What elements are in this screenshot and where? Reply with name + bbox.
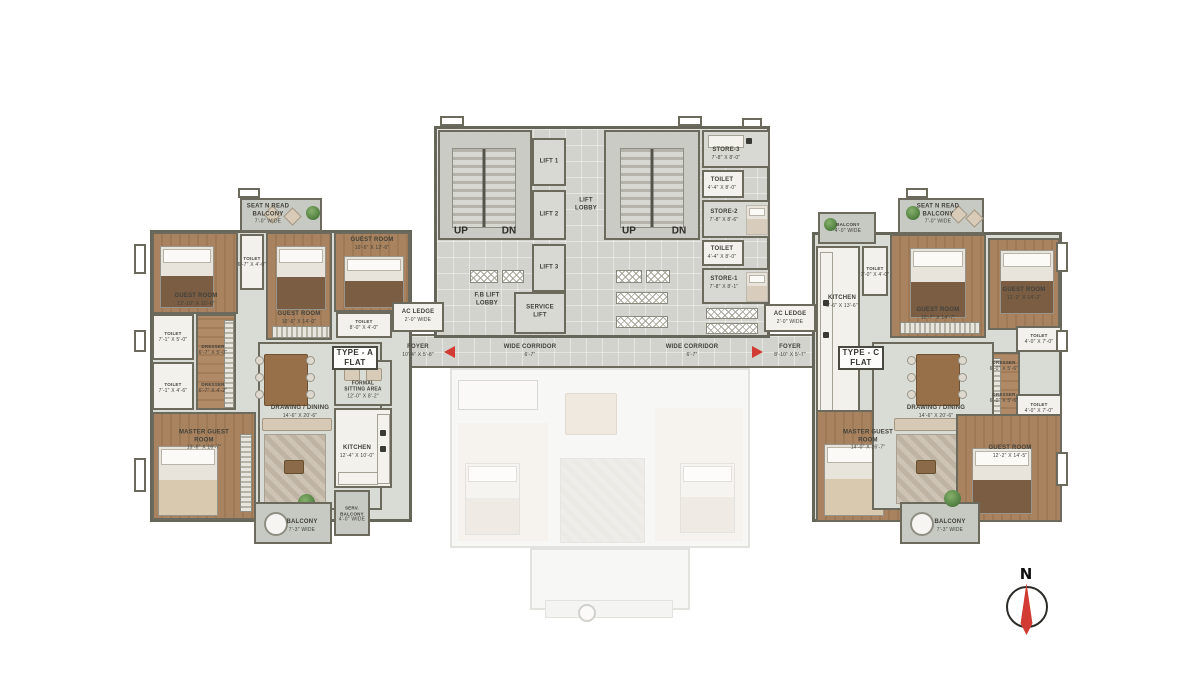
pier — [238, 188, 260, 198]
room-name: KITCHEN — [824, 295, 860, 303]
room-name: SERV. BALCONY — [334, 505, 370, 516]
room-dim: 6'-7" X 4'-0" — [238, 262, 267, 268]
dining-chair — [907, 356, 916, 365]
bed — [158, 446, 218, 516]
flat-a-formal-sitting-label: FORMAL SITTING AREA 12'-0" X 8'-2" — [341, 381, 385, 400]
room-dim: 8'-10" X 5'-7" — [774, 352, 806, 358]
core-toilet-b-label: TOILET 4'-4" X 8'-0" — [708, 246, 737, 260]
flat-a-guest-room-3-label: GUEST ROOM 10'-6" X 12'-6" — [350, 237, 393, 251]
staircase-left — [438, 130, 532, 240]
dining-table — [264, 354, 308, 406]
bed — [1000, 250, 1054, 314]
dining-chair — [958, 373, 967, 382]
x-mat — [706, 308, 758, 319]
service-lift-label: SERVICE LIFT — [522, 305, 558, 320]
corridor-label-left: WIDE CORRIDOR 6'-7" — [504, 344, 557, 358]
room-name: STORE-1 — [710, 276, 739, 284]
hob — [380, 446, 386, 452]
flat-a-toilet-left-1-label: TOILET 7'-1" X 5'-0" — [159, 331, 188, 343]
balcony-chair — [965, 209, 983, 227]
stair-newel — [651, 149, 654, 227]
flat-a-seat-balcony-label: SEAT N READ BALCONY 7'-0" WIDE — [242, 203, 294, 224]
kitchen-counter — [338, 472, 378, 485]
flat-c-dresser-1-label: DRESSER 6'-0" X 5'-6" — [990, 360, 1019, 372]
floor-plan: WIDE CORRIDOR 6'-7" WIDE CORRIDOR 6'-7" … — [0, 0, 1200, 686]
flat-c-guest-room-1-label: GUEST ROOM 10'-7" X 14'-7" — [916, 307, 959, 321]
round-table — [264, 512, 288, 536]
room-name: MASTER GUEST ROOM — [842, 429, 894, 444]
room-dim: 12'-2" X 14'-5" — [988, 453, 1031, 459]
room-dim: 12'-0" X 8'-2" — [341, 393, 385, 399]
room-name: FOYER — [402, 344, 434, 352]
ghost-balcony — [545, 600, 673, 618]
corridor-name: WIDE CORRIDOR — [504, 344, 557, 352]
round-table — [910, 512, 934, 536]
flat-a-toilet-top-label: TOILET 6'-7" X 4'-0" — [238, 256, 267, 268]
room-dim: 7'-8" X 8'-1" — [710, 284, 739, 290]
pier — [134, 330, 146, 352]
flat-a-toilet-left-2-label: TOILET 7'-1" X 4'-6" — [159, 382, 188, 394]
dining-chair — [255, 373, 264, 382]
store-bed — [746, 272, 768, 302]
room-dim: 7'-1" X 5'-0" — [159, 337, 188, 343]
corridor-name: WIDE CORRIDOR — [666, 344, 719, 352]
x-mat — [646, 270, 670, 283]
stair-dn-label: DN — [672, 226, 686, 237]
room-dim: 7'-0" WIDE — [912, 218, 964, 224]
room-name: SEAT N READ BALCONY — [242, 203, 294, 218]
dining-chair — [907, 373, 916, 382]
room-dim: 6'-0" X 5'-6" — [990, 366, 1019, 372]
room-dim: 7'-0" WIDE — [242, 218, 294, 224]
room-dim: 10'-7" X 14'-7" — [916, 315, 959, 321]
flat-a-foyer-label: FOYER 10'-4" X 5'-8" — [402, 344, 434, 358]
dining-chair — [907, 390, 916, 399]
flat-a-toilet-right-label: TOILET 8'-0" X 4'-0" — [350, 319, 379, 331]
plant — [306, 206, 320, 220]
ghost-flat — [450, 368, 750, 620]
flat-c-master-guest-room-label: MASTER GUEST ROOM 14'-0" X 16'-7" — [842, 429, 894, 450]
flat-c-kitchen — [816, 246, 860, 430]
flat-a-ac-ledge-label: AC LEDGE 2'-0" WIDE — [402, 309, 435, 323]
flat-c-tag-line2: FLAT — [850, 358, 871, 368]
flat-a-tag: TYPE - A FLAT — [332, 346, 378, 370]
x-mat — [616, 316, 668, 328]
room-name: DRESSER — [199, 344, 228, 350]
flat-a-dresser — [196, 314, 236, 410]
flat-c-guest-room-1 — [890, 234, 986, 338]
room-name: AC LEDGE — [402, 309, 435, 317]
room-dim: 4'-0" WIDE — [334, 517, 370, 523]
room-dim: 10'-6" X 14'-0" — [277, 319, 320, 325]
flat-a-serv-balcony-label: SERV. BALCONY 4'-0" WIDE — [334, 505, 370, 523]
room-dim: 12'-2" X 14'-2" — [1002, 295, 1045, 301]
pier — [440, 116, 464, 126]
ghost-round-table — [578, 604, 596, 622]
room-name: DRAWING / DINING — [270, 405, 330, 413]
stair-dn-label: DN — [502, 226, 516, 237]
room-dim: 4'-4" X 8'-0" — [708, 185, 737, 191]
flat-c-toilet-top-label: TOILET 7'-0" X 4'-0" — [861, 266, 890, 278]
flat-c-kitchen-label: KITCHEN 8'-6" X 13'-6" — [824, 295, 860, 309]
flat-c-drawing-dining-label: DRAWING / DINING 14'-6" X 20'-6" — [906, 405, 966, 419]
compass-north-label: N — [1020, 565, 1033, 583]
room-name: STORE-3 — [712, 147, 741, 155]
store-3-label: STORE-3 7'-8" X 8'-0" — [712, 147, 741, 161]
dining-chair — [255, 356, 264, 365]
room-name: TOILET — [708, 177, 737, 185]
flat-c-guest-room-2-label: GUEST ROOM 12'-2" X 14'-2" — [1002, 287, 1045, 301]
flat-c-toilet-right-1-label: TOILET 4'-0" X 7'-0" — [1025, 333, 1054, 345]
flat-c-foyer-label: FOYER 8'-10" X 5'-7" — [774, 344, 806, 358]
store-2-label: STORE-2 7'-8" X 8'-6" — [710, 209, 739, 223]
room-name: MASTER GUEST ROOM — [178, 429, 230, 444]
flat-a-dresser-2-label: DRESSER 6'-7" X 4'-2" — [199, 382, 228, 394]
dining-chair — [958, 356, 967, 365]
room-dim: 7'-8" X 8'-0" — [712, 155, 741, 161]
fb-lift-lobby-label: F.B LIFT LOBBY — [469, 293, 505, 308]
room-dim: 7'-8" X 8'-6" — [710, 217, 739, 223]
flat-a-dresser-1-label: DRESSER 6'-7" X 5'-0" — [199, 344, 228, 356]
pier — [1056, 330, 1068, 352]
pier — [742, 118, 762, 128]
store-bed — [746, 205, 768, 235]
wardrobe — [900, 322, 980, 334]
room-name: SEAT N READ BALCONY — [912, 203, 964, 218]
room-dim: 4'-4" X 8'-0" — [708, 254, 737, 260]
x-mat — [502, 270, 524, 283]
flat-c-balcony-label: BALCONY 7'-3" WIDE — [934, 519, 965, 533]
room-dim: 13'-6" X 16'-7" — [178, 444, 230, 450]
flat-a-master-guest-room-label: MASTER GUEST ROOM 13'-6" X 16'-7" — [178, 429, 230, 450]
store-chair — [746, 138, 752, 144]
flat-c-tag-line1: TYPE - C — [843, 348, 880, 358]
room-dim: 4'-0" WIDE — [830, 228, 866, 234]
coffee-table — [284, 460, 304, 474]
flat-a-guest-room-2-label: GUEST ROOM 10'-6" X 14'-0" — [277, 311, 320, 325]
room-dim: 2'-0" WIDE — [774, 319, 807, 325]
room-name: GUEST ROOM — [988, 445, 1031, 453]
hob — [823, 332, 829, 338]
room-dim: 2'-0" WIDE — [402, 317, 435, 323]
entrance-arrow-left-icon — [444, 346, 455, 358]
room-dim: 4'-0" X 7'-0" — [1025, 408, 1054, 414]
wardrobe — [224, 320, 234, 408]
pier — [1056, 242, 1068, 272]
room-name: GUEST ROOM — [916, 307, 959, 315]
stair-newel — [483, 149, 486, 227]
room-dim: 7'-3" WIDE — [934, 527, 965, 533]
room-dim: 12'-4" X 10'-0" — [340, 453, 375, 459]
room-dim: 8'-6" X 13'-6" — [824, 303, 860, 309]
ghost-rug — [560, 458, 645, 543]
x-mat — [616, 292, 668, 304]
pier — [906, 188, 928, 198]
dining-table — [916, 354, 960, 406]
room-name: STORE-2 — [710, 209, 739, 217]
dining-chair — [255, 390, 264, 399]
coffee-table — [916, 460, 936, 474]
sofa — [262, 418, 332, 431]
room-dim: 14'-6" X 20'-6" — [270, 413, 330, 419]
sofa — [894, 418, 964, 431]
room-dim: 7'-0" X 4'-0" — [861, 272, 890, 278]
flat-a-drawing-dining-label: DRAWING / DINING 14'-6" X 20'-6" — [270, 405, 330, 419]
room-dim: 7'-3" WIDE — [286, 527, 317, 533]
plant — [944, 490, 961, 507]
stair-treads — [620, 148, 684, 228]
corridor-dim: 6'-7" — [666, 352, 719, 358]
flat-c-balcony-top-label: BALCONY 4'-0" WIDE — [830, 222, 866, 234]
room-dim: 14'-6" X 20'-6" — [906, 413, 966, 419]
x-mat — [616, 270, 642, 283]
room-name: FORMAL SITTING AREA — [341, 381, 385, 394]
core-toilet-a-label: TOILET 4'-4" X 8'-0" — [708, 177, 737, 191]
room-name: GUEST ROOM — [350, 237, 393, 245]
pier — [134, 458, 146, 492]
flat-a-tag-line1: TYPE - A — [337, 348, 374, 358]
flat-a-kitchen-label: KITCHEN 12'-4" X 10'-0" — [340, 445, 375, 459]
flat-c-toilet-right-2-label: TOILET 4'-0" X 7'-0" — [1025, 402, 1054, 414]
flat-a-balcony-label: BALCONY 7'-3" WIDE — [286, 519, 317, 533]
room-name: FOYER — [774, 344, 806, 352]
stair-up-label: UP — [622, 226, 636, 237]
ghost-bed — [680, 463, 735, 533]
flat-c-guest-room-2 — [988, 238, 1060, 330]
wardrobe — [240, 434, 252, 512]
room-name: BALCONY — [934, 519, 965, 527]
room-name: DRESSER — [990, 360, 1019, 366]
bed — [344, 256, 404, 308]
room-dim: 4'-0" X 7'-0" — [1025, 339, 1054, 345]
room-name: AC LEDGE — [774, 311, 807, 319]
room-dim: 10'-4" X 5'-8" — [402, 352, 434, 358]
entrance-arrow-right-icon — [752, 346, 763, 358]
room-name: DRESSER — [199, 382, 228, 388]
wardrobe — [272, 326, 330, 338]
room-dim: 10'-6" X 12'-6" — [350, 245, 393, 251]
dining-chair — [306, 356, 315, 365]
dining-chair — [306, 390, 315, 399]
ghost-dining-table — [565, 393, 617, 435]
store-desk — [708, 135, 744, 148]
stair-treads — [452, 148, 516, 228]
dining-chair — [958, 390, 967, 399]
flat-c-ac-ledge-label: AC LEDGE 2'-0" WIDE — [774, 311, 807, 325]
dining-chair — [306, 373, 315, 382]
flat-a-guest-room-1-label: GUEST ROOM 12'-10" X 10'-6" — [174, 293, 217, 307]
corridor-dim: 6'-7" — [504, 352, 557, 358]
stair-up-label: UP — [454, 226, 468, 237]
room-dim: 7'-1" X 4'-6" — [159, 388, 188, 394]
pier — [134, 244, 146, 274]
lift-2-label: LIFT 2 — [540, 211, 559, 219]
pier — [678, 116, 702, 126]
lift-3-label: LIFT 3 — [540, 264, 559, 272]
x-mat — [470, 270, 498, 283]
room-name: GUEST ROOM — [174, 293, 217, 301]
flat-c-seat-balcony-label: SEAT N READ BALCONY 7'-0" WIDE — [912, 203, 964, 224]
ghost-kitchen-counter — [458, 380, 538, 410]
room-name: KITCHEN — [340, 445, 375, 453]
room-name: TOILET — [708, 246, 737, 254]
flat-c-guest-room-3-label: GUEST ROOM 12'-2" X 14'-5" — [988, 445, 1031, 459]
lift-1-label: LIFT 1 — [540, 158, 559, 166]
room-name: GUEST ROOM — [277, 311, 320, 319]
flat-c-dresser-2-label: DRESSER 6'-0" X 5'-6" — [990, 392, 1019, 404]
room-name: GUEST ROOM — [1002, 287, 1045, 295]
lift-lobby-label: LIFT LOBBY — [568, 198, 604, 213]
room-dim: 14'-0" X 16'-7" — [842, 444, 894, 450]
room-dim: 6'-7" X 4'-2" — [199, 388, 228, 394]
flat-c-tag: TYPE - C FLAT — [838, 346, 884, 370]
pier — [1056, 452, 1068, 486]
room-dim: 12'-10" X 10'-6" — [174, 301, 217, 307]
hob — [380, 430, 386, 436]
flat-a-tag-line2: FLAT — [344, 358, 365, 368]
room-dim: 6'-7" X 5'-0" — [199, 350, 228, 356]
room-name: DRAWING / DINING — [906, 405, 966, 413]
room-dim: 8'-0" X 4'-0" — [350, 325, 379, 331]
ghost-bed — [465, 463, 520, 535]
corridor-label-right: WIDE CORRIDOR 6'-7" — [666, 344, 719, 358]
x-mat — [706, 323, 758, 334]
room-dim: 6'-0" X 5'-6" — [990, 398, 1019, 404]
flat-a-master-guest-room — [152, 412, 256, 520]
room-name: DRESSER — [990, 392, 1019, 398]
room-name: BALCONY — [286, 519, 317, 527]
bed — [276, 246, 326, 310]
staircase-right — [604, 130, 700, 240]
store-1-label: STORE-1 7'-8" X 8'-1" — [710, 276, 739, 290]
